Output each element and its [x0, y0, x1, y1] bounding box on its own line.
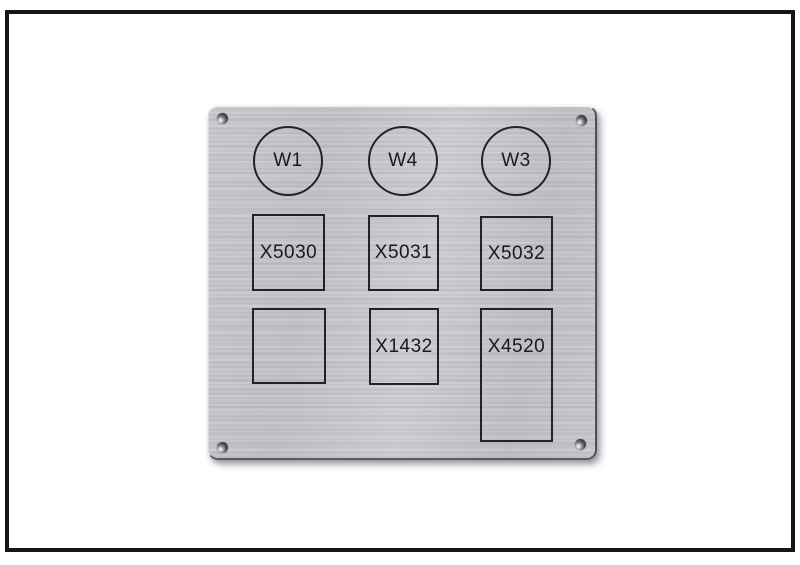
rect-cutout-x5030: X5030	[252, 214, 325, 291]
screw-hole-bottom-left	[217, 442, 228, 453]
rect-label: X1432	[375, 336, 432, 358]
circle-cutout-w1: W1	[253, 126, 323, 196]
circle-label: W1	[273, 150, 303, 172]
rect-label: X5032	[488, 243, 545, 265]
rect-cutout-x4520: X4520	[480, 308, 553, 442]
rect-cutout-blank	[252, 308, 326, 384]
screw-hole-top-right	[576, 115, 587, 126]
rect-label: X4520	[488, 336, 545, 358]
rect-label: X5030	[260, 242, 317, 264]
rect-cutout-x1432: X1432	[369, 308, 439, 385]
screw-hole-bottom-right	[575, 439, 586, 450]
circle-label: W3	[501, 150, 531, 172]
rect-cutout-x5031: X5031	[368, 215, 439, 291]
circle-cutout-w3: W3	[481, 126, 551, 196]
circle-label: W4	[388, 150, 418, 172]
photo-stage: W1 W4 W3 X5030 X5031 X5032 X1432 X4520	[0, 0, 800, 565]
circle-cutout-w4: W4	[368, 126, 438, 196]
screw-hole-top-left	[217, 113, 228, 124]
rect-cutout-x5032: X5032	[480, 216, 553, 291]
rect-label: X5031	[375, 242, 432, 264]
aluminum-panel: W1 W4 W3 X5030 X5031 X5032 X1432 X4520	[208, 106, 597, 460]
